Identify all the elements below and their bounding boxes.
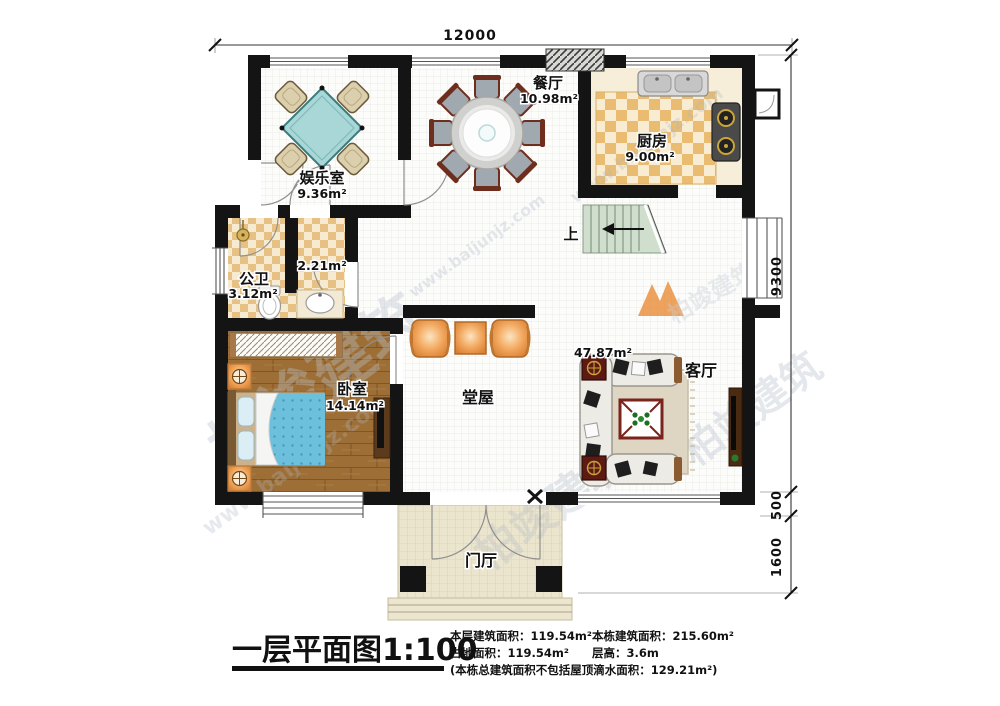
tv-cabinet [729, 388, 742, 466]
porch-pillar-right [536, 566, 562, 592]
label-kitchen: 厨房 [637, 132, 667, 150]
back-door-mat [546, 49, 604, 71]
armchair [491, 320, 530, 357]
armchair [411, 320, 450, 357]
window-bathroom-west [212, 248, 228, 294]
window-living-south [578, 492, 720, 505]
stat-floor-height: 层高：3.6m [591, 646, 659, 660]
wall-bath-bedroom [228, 318, 403, 331]
side-table [455, 322, 486, 354]
label-bedroom: 卧室 [337, 380, 367, 398]
plan-title: 一层平面图1:100 [232, 633, 478, 668]
title-underline [232, 666, 444, 671]
stat-land-area: 占地面积：119.54m² [450, 646, 569, 660]
wall-kitchen-south-right [716, 185, 742, 198]
area-kitchen: 9.00m² [625, 149, 674, 164]
wardrobe [230, 333, 342, 357]
area-washroom: 2.21m² [297, 258, 346, 273]
label-living: 客厅 [685, 361, 717, 380]
dim-top-width: 12000 [443, 28, 497, 44]
window-bedroom-south [263, 492, 363, 518]
wall-kitchen-west [578, 68, 591, 185]
stat-note: (本栋总建筑面积不包括屋顶滴水面积：129.21m²) [450, 663, 717, 677]
nightstand [228, 364, 251, 389]
hall-chair-set [411, 320, 530, 357]
porch-pillar-left [400, 566, 426, 592]
area-dining: 10.98m² [520, 91, 578, 106]
washbasin [297, 290, 343, 318]
label-foyer: 门厅 [465, 551, 497, 570]
window-kitchen-north [626, 55, 710, 68]
end-table [582, 456, 606, 480]
stat-floor-area: 本层建筑面积：119.54m² [450, 629, 592, 643]
sofa-wood-arm [674, 357, 682, 383]
area-living: 47.87m² [574, 345, 632, 360]
wall-kitchen-south [578, 185, 678, 198]
area-bedroom: 14.14m² [326, 398, 384, 413]
dim-right-main: 9300 [770, 256, 785, 296]
pillow [238, 397, 254, 426]
label-stairs-up: 上 [563, 225, 578, 243]
label-entertainment: 娱乐室 [299, 169, 344, 187]
sofa-wood-arm [674, 457, 682, 481]
coffee-table [620, 400, 662, 438]
porch-steps [388, 598, 572, 620]
nightstand [228, 466, 251, 491]
title-block: 一层平面图1:100 本层建筑面积：119.54m² 本栋建筑面积：215.60… [232, 629, 734, 677]
dim-right-porch: 1600 [770, 537, 785, 577]
kitchen-sink [638, 71, 708, 96]
dim-right-step: 500 [770, 490, 785, 520]
kitchen-stove [712, 103, 740, 161]
mahjong-table-set [273, 79, 370, 176]
bed [228, 390, 325, 468]
stat-building-area: 本栋建筑面积：215.60m² [592, 629, 734, 643]
label-dining: 餐厅 [533, 74, 563, 92]
wall-ent-east [398, 68, 411, 160]
wall-bath-divider [285, 218, 298, 293]
wall-hall-stub [403, 305, 535, 318]
label-hall: 堂屋 [462, 388, 494, 407]
window-entertainment-north [270, 55, 348, 68]
wall-east-cap [742, 305, 780, 318]
wall-ent-south [261, 205, 411, 218]
area-entertainment: 9.36m² [297, 186, 346, 201]
area-bathroom: 3.12m² [228, 286, 277, 301]
pillow [238, 431, 254, 460]
kitchen-flue-alcove [755, 90, 779, 118]
floor-plan: 柏竣建筑 www.baijunjz.com 柏竣建筑 www.baijunjz.… [0, 0, 1000, 706]
window-dining-north [412, 55, 500, 68]
